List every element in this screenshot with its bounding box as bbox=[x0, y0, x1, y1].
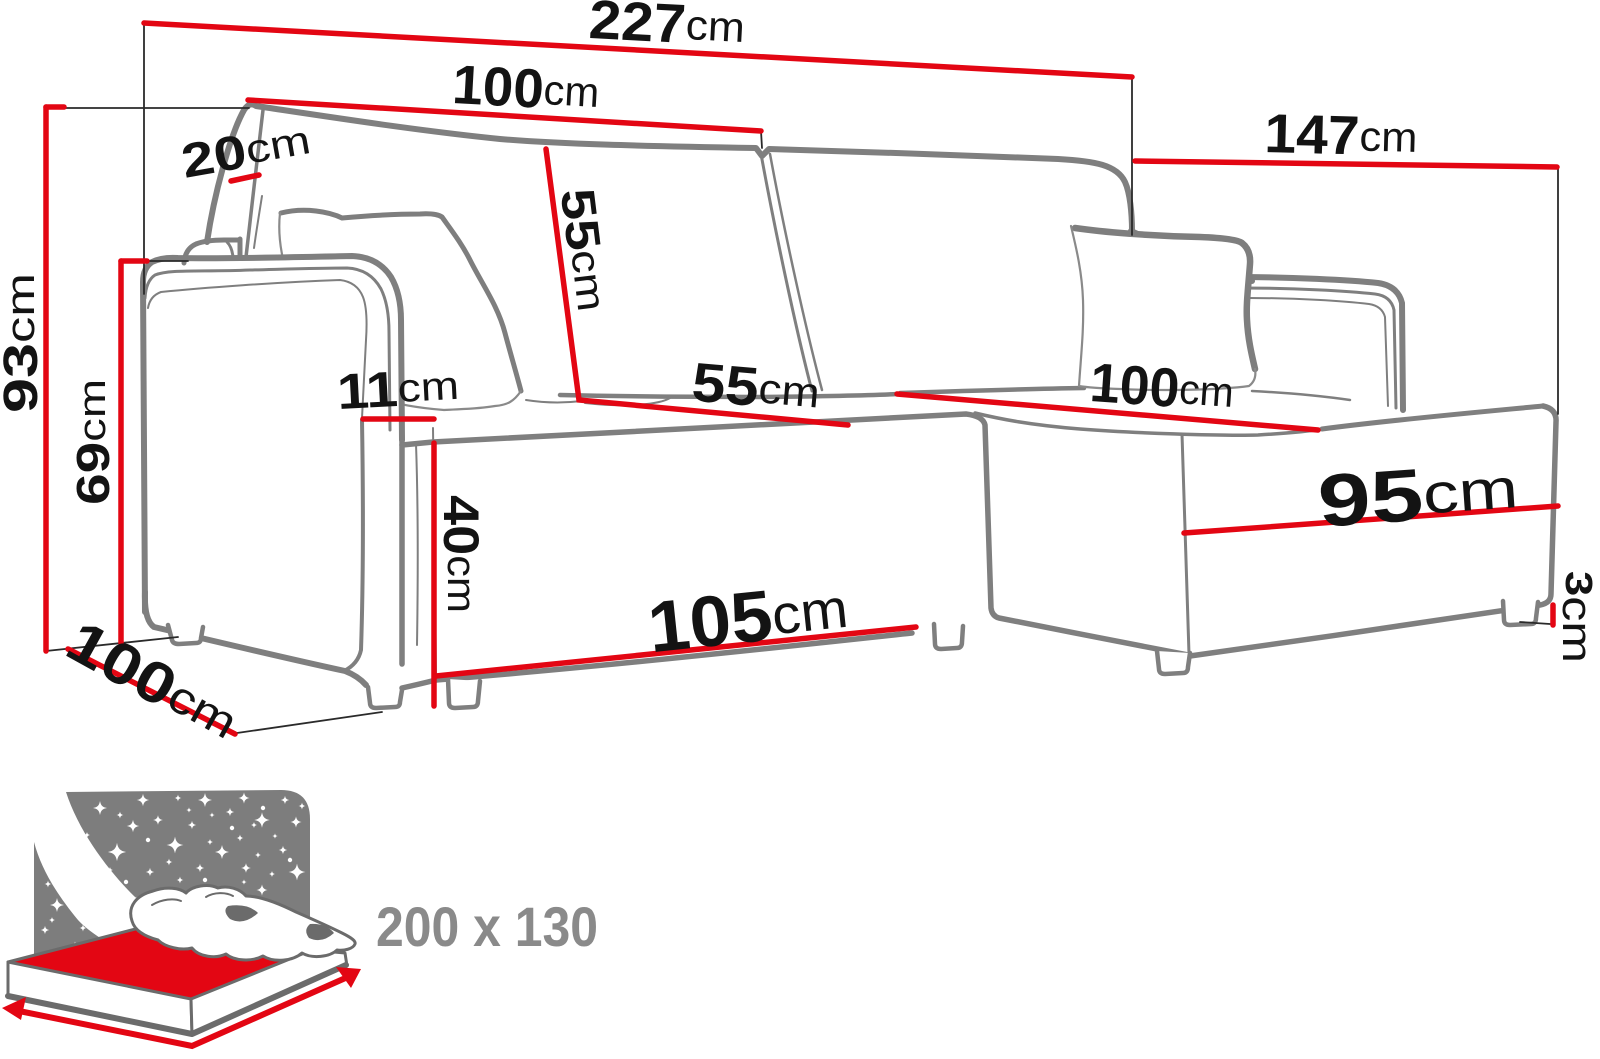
svg-text:40cm: 40cm bbox=[433, 495, 489, 613]
svg-text:93cm: 93cm bbox=[0, 273, 48, 413]
svg-text:227cm: 227cm bbox=[587, 0, 746, 58]
svg-text:200 x 130: 200 x 130 bbox=[376, 895, 598, 958]
svg-text:3cm: 3cm bbox=[1555, 571, 1600, 663]
svg-text:69cm: 69cm bbox=[67, 379, 119, 505]
